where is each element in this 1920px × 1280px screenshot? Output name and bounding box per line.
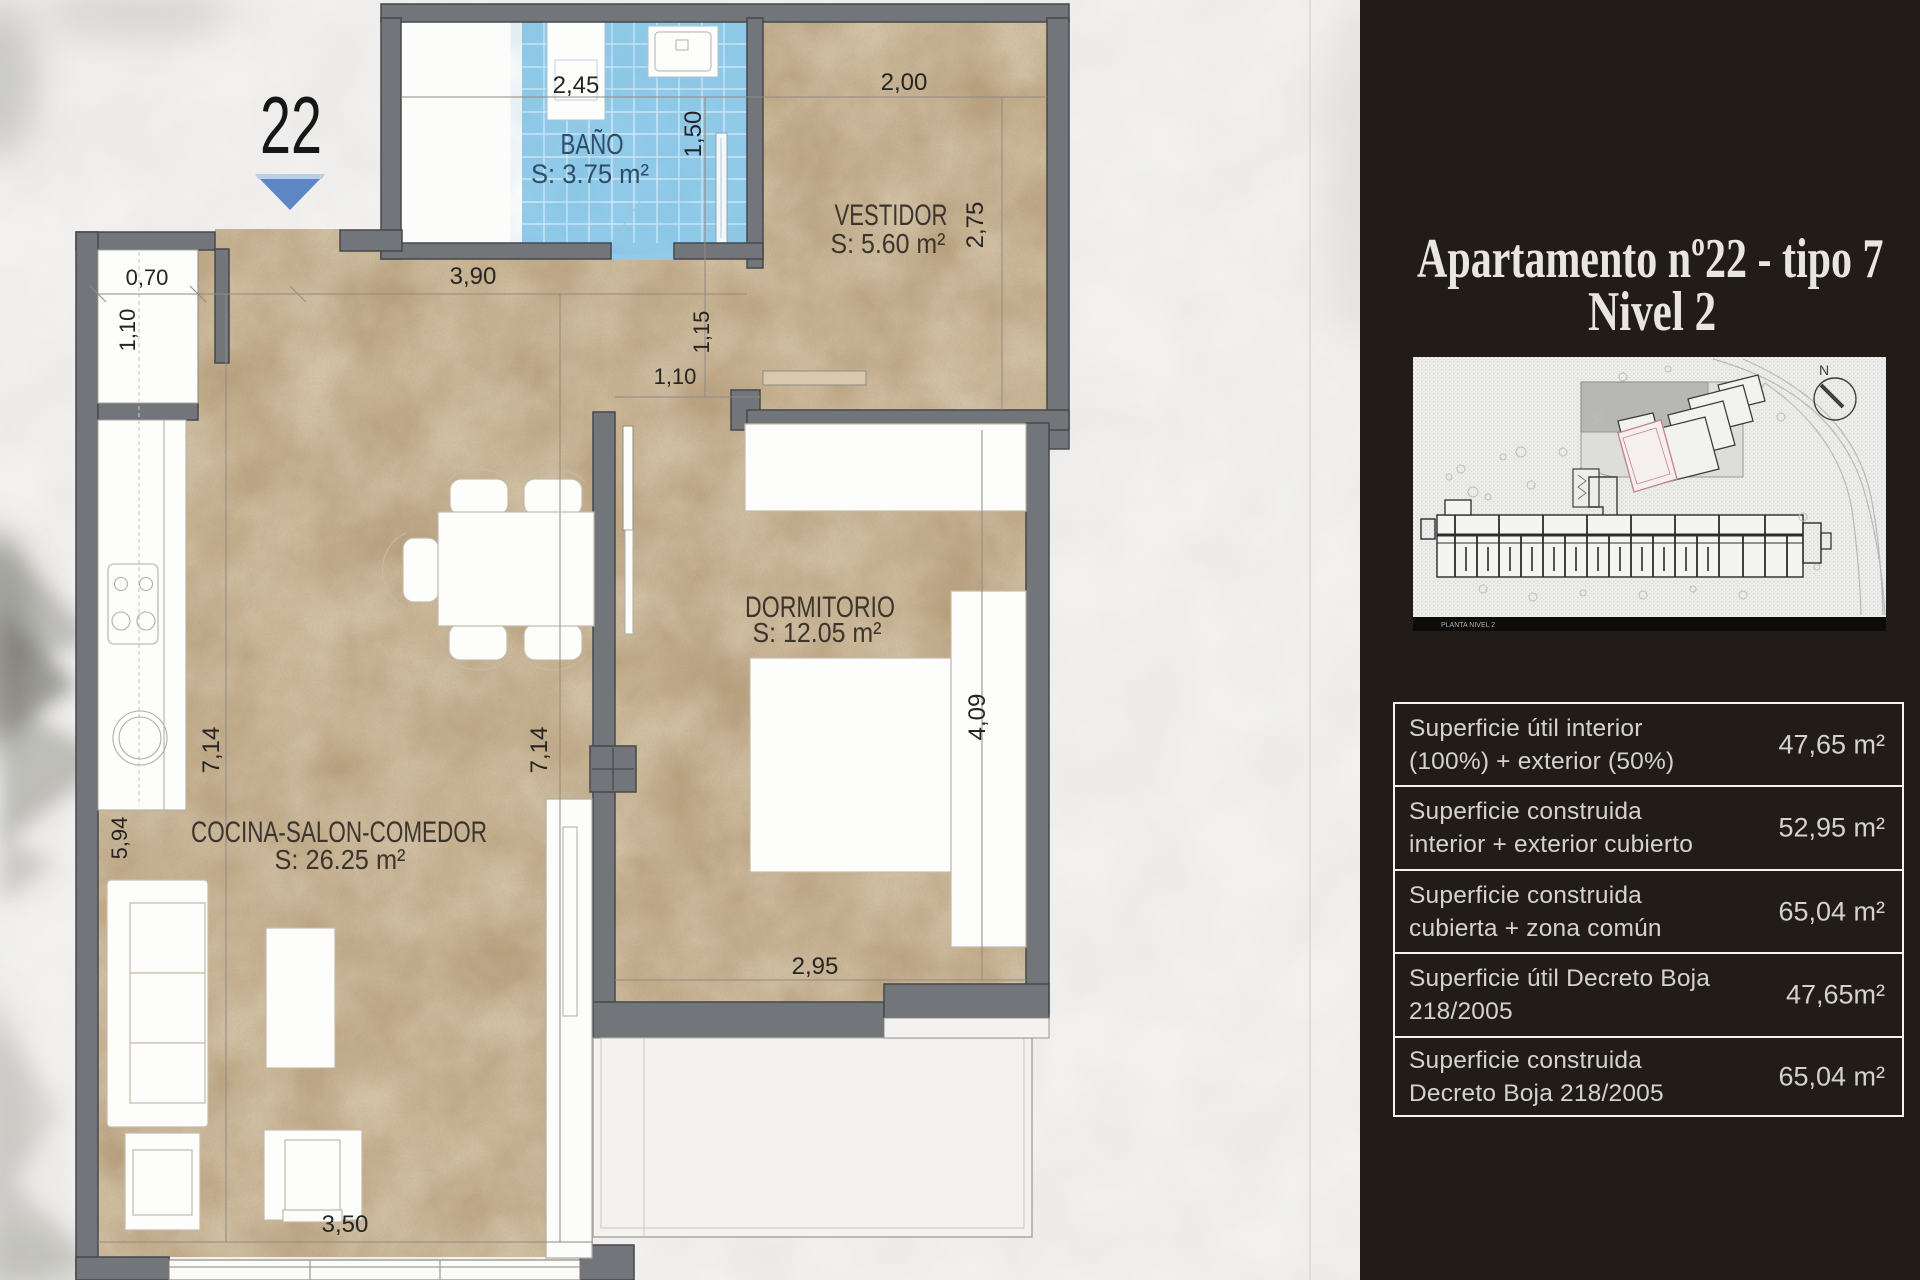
svg-text:5,94: 5,94: [107, 817, 132, 860]
svg-text:1,10: 1,10: [115, 309, 140, 352]
svg-text:2,00: 2,00: [881, 69, 928, 96]
svg-text:4,09: 4,09: [964, 694, 991, 741]
svg-text:S: 26.25 m²: S: 26.25 m²: [275, 844, 406, 875]
svg-text:S: 3.75 m²: S: 3.75 m²: [531, 159, 649, 189]
svg-text:0,70: 0,70: [126, 265, 169, 290]
svg-text:3,90: 3,90: [450, 263, 497, 290]
svg-text:BAÑO: BAÑO: [561, 127, 624, 161]
svg-text:22: 22: [260, 81, 322, 171]
svg-text:N: N: [1819, 362, 1829, 378]
svg-text:2,75: 2,75: [962, 202, 989, 249]
svg-text:S: 5.60 m²: S: 5.60 m²: [831, 228, 946, 259]
svg-text:7,14: 7,14: [526, 727, 553, 774]
svg-text:PLANTA NIVEL 2: PLANTA NIVEL 2: [1441, 622, 1495, 629]
svg-text:1,15: 1,15: [689, 311, 714, 354]
svg-text:1,50: 1,50: [680, 111, 707, 158]
svg-text:2,45: 2,45: [553, 72, 600, 99]
svg-text:S: 12.05 m²: S: 12.05 m²: [753, 617, 882, 648]
svg-text:3,50: 3,50: [322, 1211, 369, 1238]
svg-text:7,14: 7,14: [198, 727, 225, 774]
svg-text:2,95: 2,95: [792, 953, 839, 980]
svg-text:1,10: 1,10: [654, 364, 697, 389]
